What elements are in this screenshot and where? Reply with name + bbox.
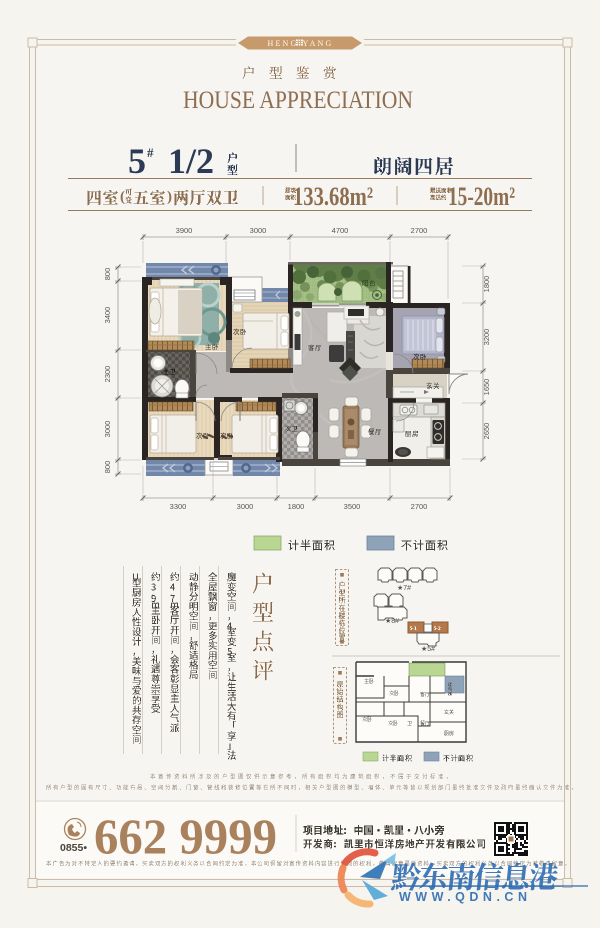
svg-text:3000: 3000 bbox=[237, 502, 254, 511]
svg-text:1800: 1800 bbox=[288, 502, 305, 511]
svg-text:YANG: YANG bbox=[302, 39, 333, 48]
svg-text:800: 800 bbox=[103, 461, 112, 474]
svg-text:5: 5 bbox=[128, 141, 146, 181]
svg-text:2650: 2650 bbox=[482, 423, 491, 440]
svg-text:3000: 3000 bbox=[103, 421, 112, 438]
svg-text:3000: 3000 bbox=[250, 226, 267, 235]
svg-text:3300: 3300 bbox=[170, 502, 187, 511]
svg-text:): ) bbox=[167, 189, 172, 205]
svg-text:1800: 1800 bbox=[482, 276, 491, 293]
svg-text:3900: 3900 bbox=[176, 226, 193, 235]
svg-text:2700: 2700 bbox=[411, 502, 428, 511]
svg-text:133.68m²: 133.68m² bbox=[293, 182, 373, 211]
svg-text:(: ( bbox=[120, 189, 125, 205]
svg-text:★5#: ★5# bbox=[421, 645, 435, 653]
svg-text:HENG: HENG bbox=[267, 39, 298, 48]
svg-text:2300: 2300 bbox=[103, 366, 112, 383]
svg-text:3500: 3500 bbox=[344, 502, 361, 511]
svg-text:0855•: 0855• bbox=[60, 842, 87, 854]
svg-text:HOUSE APPRECIATION: HOUSE APPRECIATION bbox=[183, 87, 413, 114]
svg-text:800: 800 bbox=[103, 268, 112, 281]
svg-text:WWW.QDN.CN: WWW.QDN.CN bbox=[399, 890, 531, 904]
svg-text:3200: 3200 bbox=[482, 329, 491, 346]
svg-text:2700: 2700 bbox=[411, 226, 428, 235]
svg-text:3400: 3400 bbox=[103, 307, 112, 324]
svg-text:1650: 1650 bbox=[482, 379, 491, 396]
svg-text:15-20m²: 15-20m² bbox=[448, 182, 515, 211]
svg-text:662 9999: 662 9999 bbox=[94, 808, 277, 864]
svg-text:★8#: ★8# bbox=[385, 617, 399, 625]
svg-text:4700: 4700 bbox=[332, 226, 349, 235]
svg-text:#: # bbox=[147, 145, 154, 160]
svg-text:1/2: 1/2 bbox=[168, 141, 214, 181]
svg-text:★7#: ★7# bbox=[397, 584, 411, 592]
